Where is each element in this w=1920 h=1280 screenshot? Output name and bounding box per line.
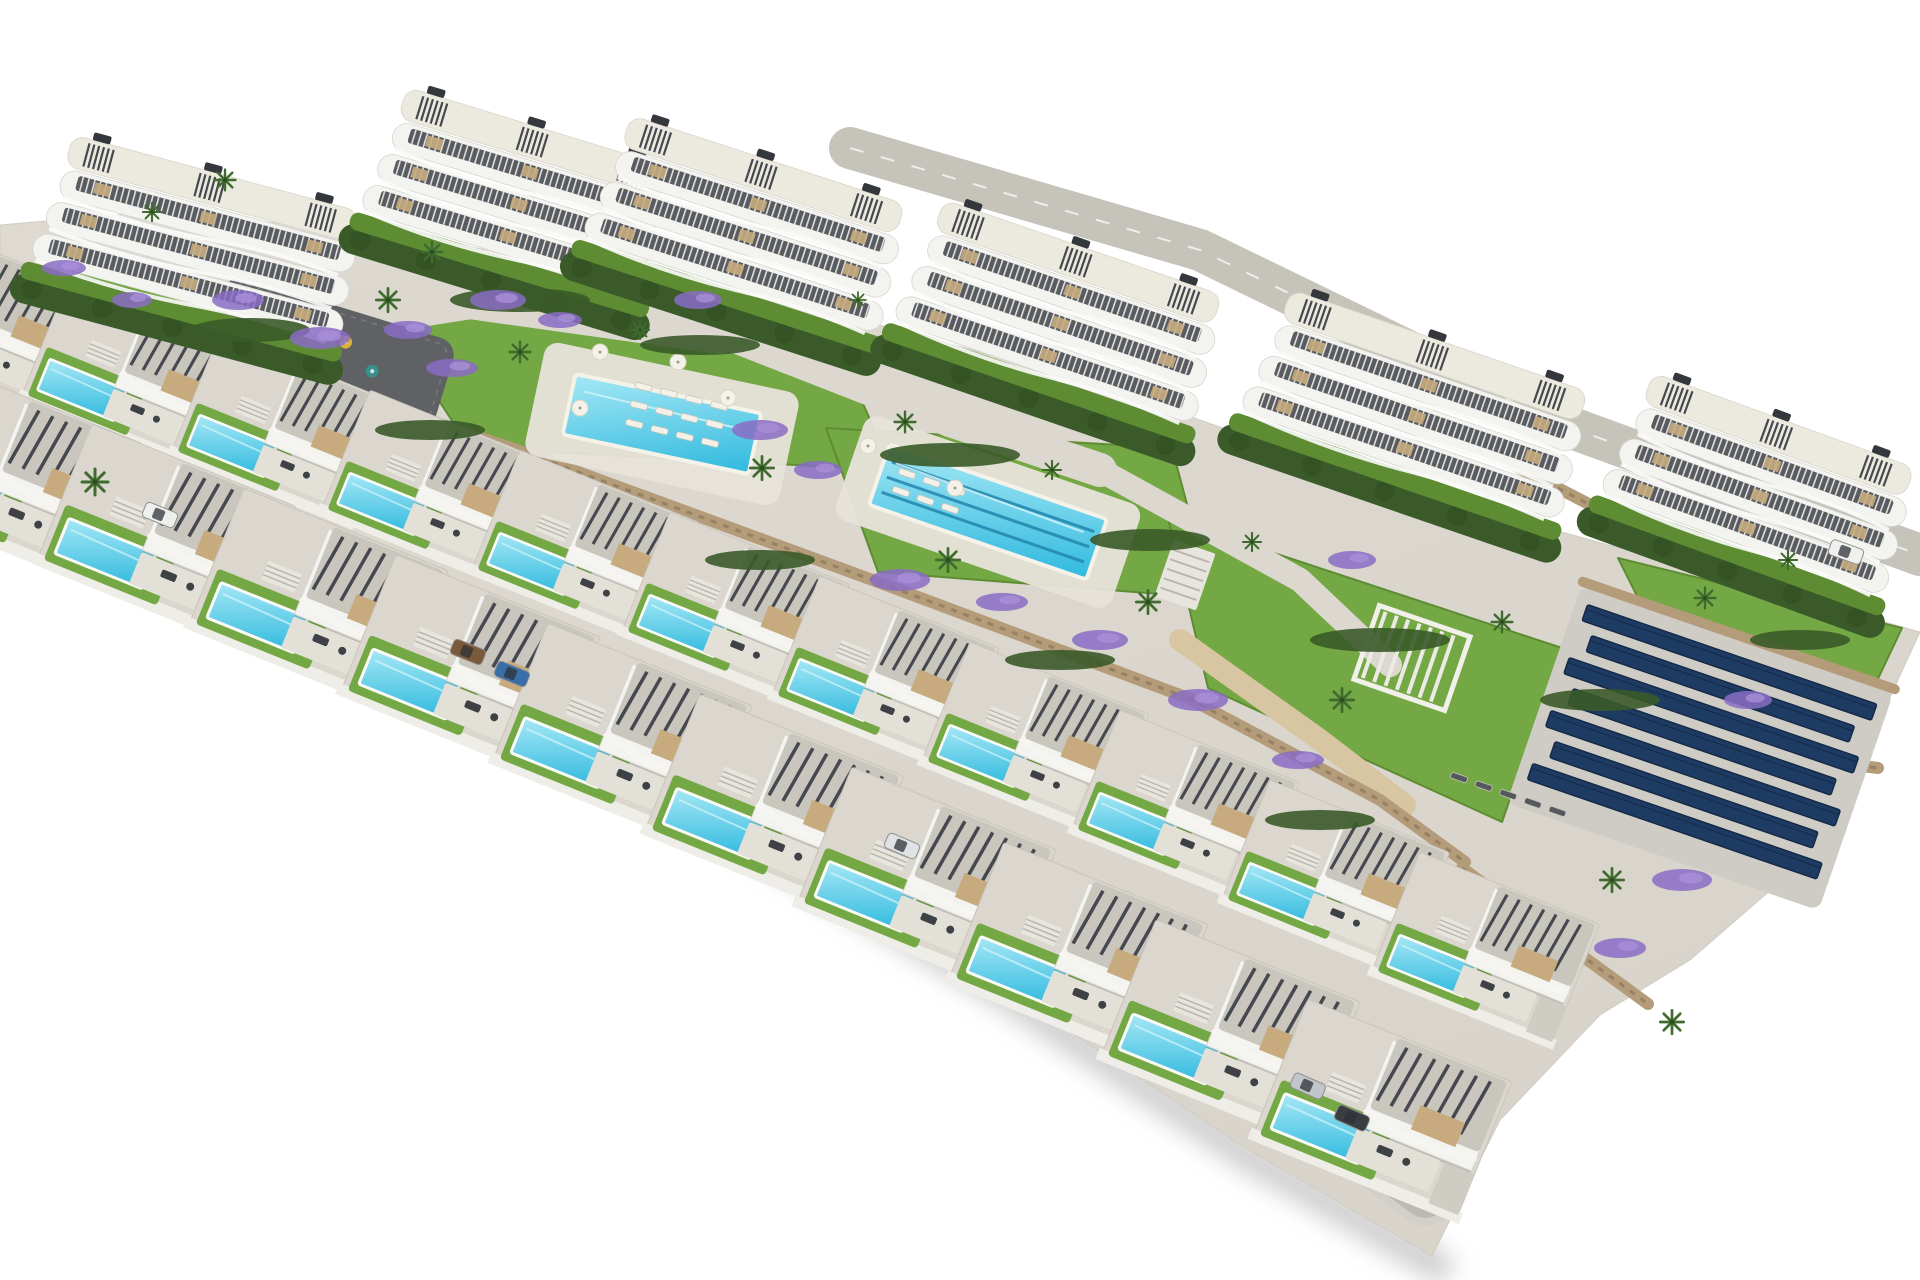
flower-bed [674, 291, 722, 309]
palm-tree [82, 469, 108, 495]
parasol [670, 354, 686, 370]
palm-tree [143, 203, 161, 221]
flower-bed [870, 569, 930, 591]
palm-tree [1695, 588, 1716, 609]
flower-bed [1168, 689, 1228, 711]
palm-tree [895, 412, 916, 433]
parasol [947, 480, 963, 496]
palm-tree [750, 456, 773, 479]
palm-tree [1492, 612, 1513, 633]
flower-bed [426, 359, 478, 377]
parasol [592, 344, 608, 360]
flower-bed [1072, 630, 1128, 650]
render-canvas [0, 0, 1920, 1280]
palm-tree [631, 321, 649, 339]
palm-tree [215, 170, 236, 191]
palm-tree [422, 242, 443, 263]
palm-tree [376, 288, 399, 311]
palm-tree [1660, 1010, 1683, 1033]
flower-bed [976, 593, 1028, 611]
hedge [1005, 650, 1115, 670]
palm-tree [1330, 688, 1353, 711]
hedge [640, 335, 760, 355]
palm-tree [1600, 868, 1623, 891]
flower-bed [1594, 938, 1646, 958]
flower-bed [470, 290, 526, 310]
palm-tree [936, 548, 959, 571]
flower-bed [794, 461, 842, 479]
palm-tree [1043, 461, 1061, 479]
flower-bed [384, 321, 432, 339]
flower-bed [732, 420, 788, 440]
flower-bed [42, 260, 86, 276]
hedge [1265, 810, 1375, 830]
palm-tree [1136, 590, 1159, 613]
palm-tree [850, 292, 866, 308]
flower-bed [1328, 551, 1376, 569]
flower-bed [1652, 869, 1712, 891]
flower-bed [1272, 751, 1324, 769]
palm-tree [510, 342, 531, 363]
parasol [572, 400, 588, 416]
hedge [705, 550, 815, 570]
flower-bed [290, 327, 350, 349]
flower-bed [1724, 691, 1772, 709]
palm-tree [1779, 551, 1797, 569]
parasol [720, 390, 736, 406]
palm-tree [1243, 533, 1261, 551]
hedge [1540, 689, 1660, 711]
hedge [1310, 628, 1450, 652]
hedge [375, 420, 485, 440]
flower-bed [112, 292, 152, 308]
parasol [860, 438, 876, 454]
hedge [1750, 630, 1850, 650]
hedge [1090, 529, 1210, 551]
flower-bed [538, 312, 582, 328]
development-aerial-render [0, 0, 1920, 1280]
flower-bed [212, 290, 264, 310]
hedge [880, 443, 1020, 467]
